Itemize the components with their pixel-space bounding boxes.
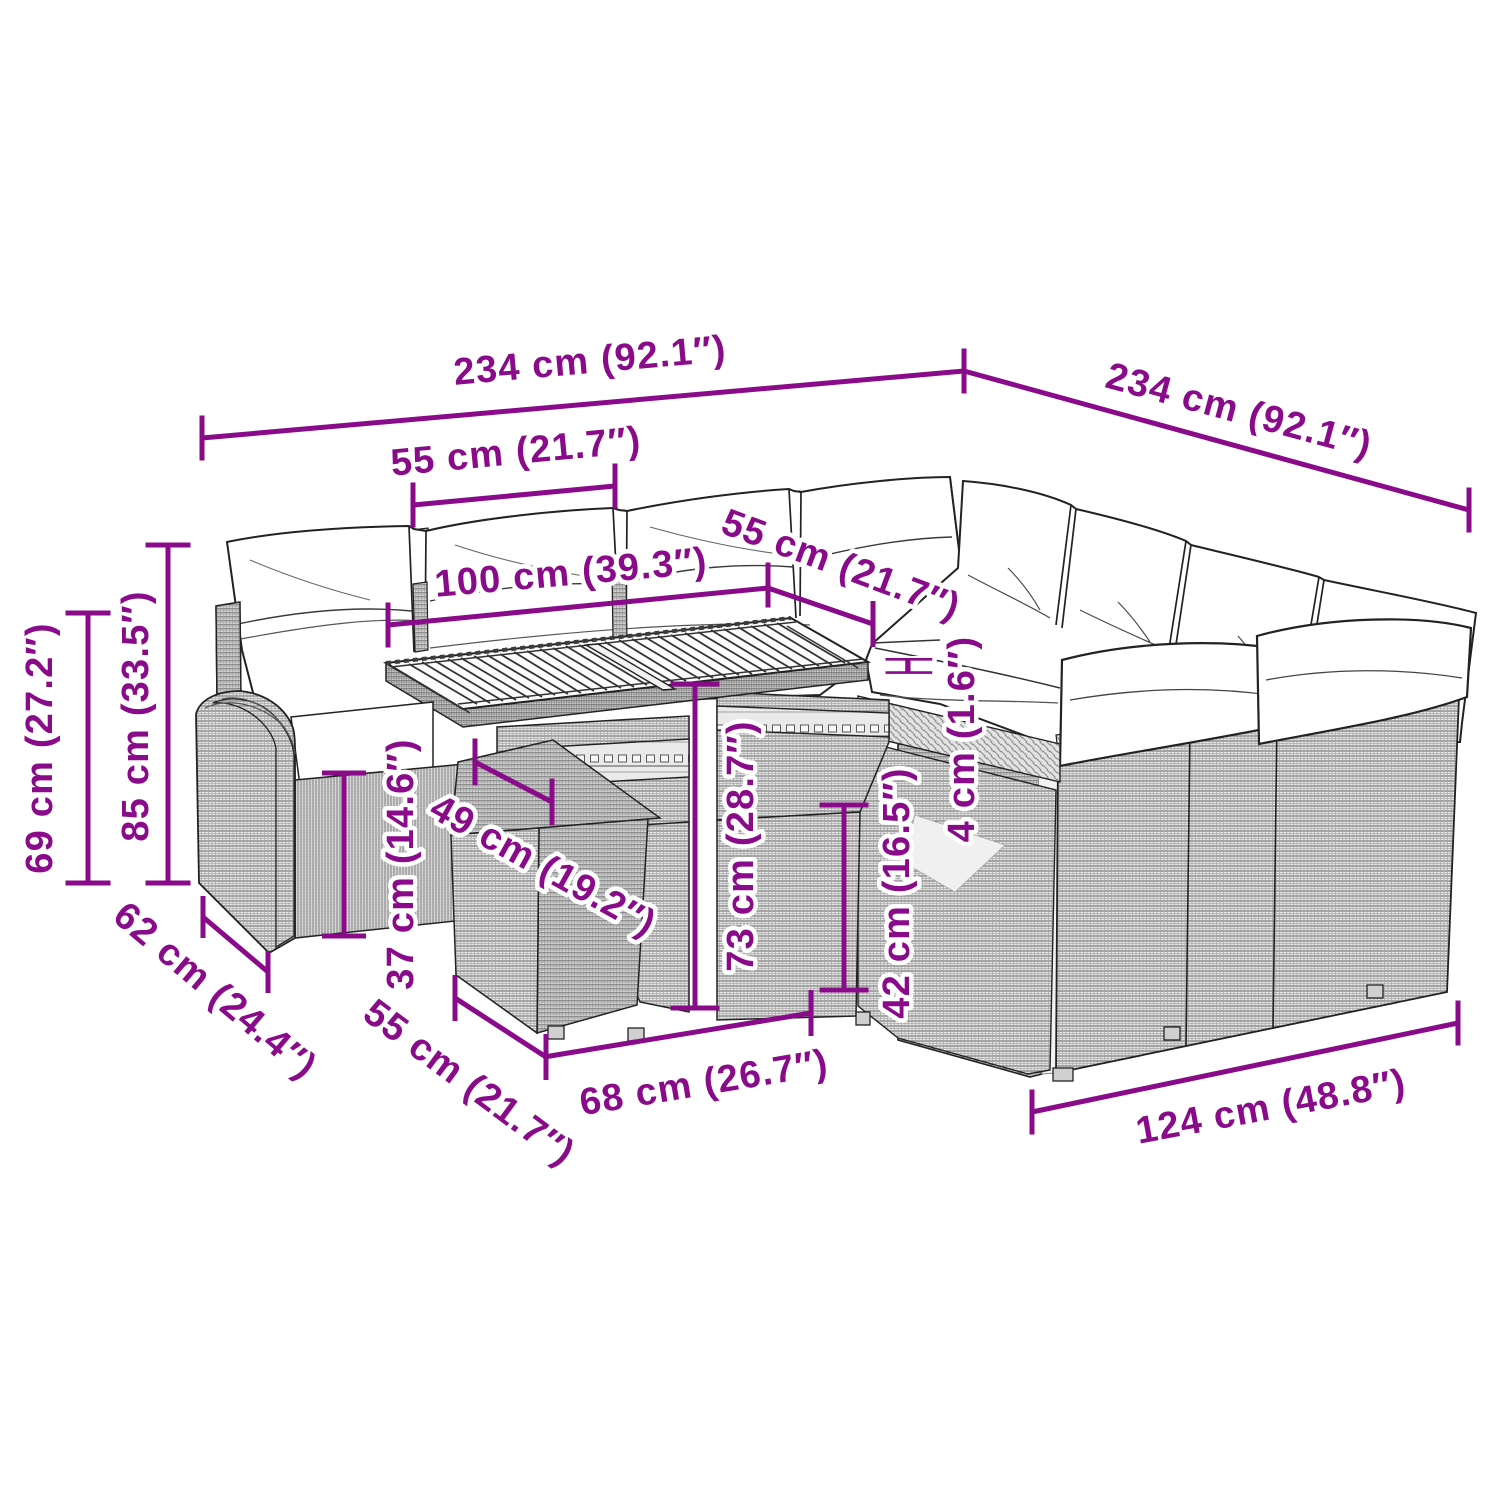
svg-text:4 cm (1.6″): 4 cm (1.6″) xyxy=(941,636,983,843)
svg-text:37 cm (14.6″): 37 cm (14.6″) xyxy=(380,738,422,989)
svg-text:73 cm (28.7″): 73 cm (28.7″) xyxy=(720,720,762,971)
svg-text:85 cm (33.5″): 85 cm (33.5″) xyxy=(115,590,157,841)
svg-text:42 cm (16.5″): 42 cm (16.5″) xyxy=(876,767,918,1018)
svg-text:69 cm (27.2″): 69 cm (27.2″) xyxy=(19,622,61,873)
svg-text:H: H xyxy=(872,656,948,677)
